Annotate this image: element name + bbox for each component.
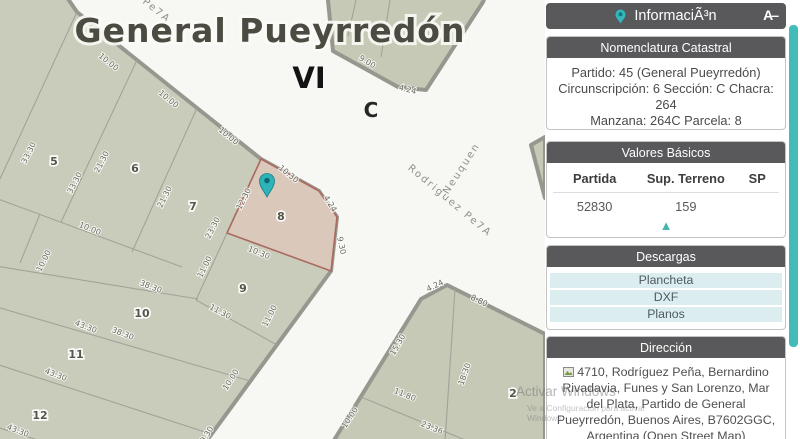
address-photo-icon	[563, 367, 574, 377]
panel-valores: Valores Básicos Partida Sup. Terreno SP …	[546, 141, 786, 238]
nomenclatura-circunscripcion: Circunscripción: 6 Sección: C Chacra: 26…	[551, 81, 781, 113]
cell-partida: 52830	[553, 199, 636, 214]
parcel-number: 5	[50, 155, 58, 168]
direccion-body: 4710, Rodríguez Peña, Bernardino Rivadav…	[547, 358, 785, 439]
parcel-number: 8	[277, 210, 285, 223]
block-bottom-right[interactable]	[328, 285, 545, 439]
info-header: InformaciÃ³n A–	[546, 3, 786, 29]
info-sidebar: InformaciÃ³n A– Nomenclatura Catastral P…	[546, 0, 786, 439]
download-plancheta[interactable]: Plancheta	[550, 273, 782, 288]
panel-direccion-title: Dirección	[547, 337, 785, 358]
panel-nomenclatura-title: Nomenclatura Catastral	[547, 37, 785, 58]
parcel-number: 6	[131, 162, 139, 175]
block-right-fragment[interactable]	[531, 137, 545, 198]
panel-descargas-title: Descargas	[547, 246, 785, 267]
parcel-number: 12	[32, 409, 47, 422]
panel-valores-title: Valores Básicos	[547, 142, 785, 163]
cell-sp	[735, 199, 779, 214]
street-label-neuquen: Neuquen	[441, 141, 482, 197]
cell-sup-terreno: 159	[636, 199, 735, 214]
map-canvas: 10.00 10.00 10.00 10.30 4.24 9.30 12.30 …	[0, 0, 545, 439]
section-label: C	[364, 98, 379, 122]
panel-direccion: Dirección 4710, Rodríguez Peña, Bernardi…	[546, 336, 786, 439]
col-sup-terreno: Sup. Terreno	[636, 171, 735, 186]
cadastral-map[interactable]: 10.00 10.00 10.00 10.30 4.24 9.30 12.30 …	[0, 0, 545, 439]
col-partida: Partida	[553, 171, 636, 186]
nomenclatura-manzana: Manzana: 264C Parcela: 8	[551, 113, 781, 129]
panel-descargas: Descargas Plancheta DXF Planos	[546, 245, 786, 330]
parcel-number: 10	[134, 307, 150, 320]
map-title: General Pueyrredón	[75, 11, 466, 50]
col-sp: SP	[735, 171, 779, 186]
parcel-number: 7	[189, 200, 197, 213]
parcel-number: 11	[68, 348, 83, 361]
parcel-number: 2	[509, 387, 517, 400]
nomenclatura-partido: Partido: 45 (General Pueyrredón)	[551, 65, 781, 81]
download-planos[interactable]: Planos	[550, 307, 782, 322]
download-dxf[interactable]: DXF	[550, 290, 782, 305]
valores-data-row: 52830 159	[553, 192, 779, 214]
descargas-body: Plancheta DXF Planos	[547, 267, 785, 328]
panel-nomenclatura: Nomenclatura Catastral Partido: 45 (Gene…	[546, 36, 786, 130]
cadastral-viewer: 10.00 10.00 10.00 10.30 4.24 9.30 12.30 …	[0, 0, 800, 439]
nomenclatura-body: Partido: 45 (General Pueyrredón) Circuns…	[547, 58, 785, 130]
pyramid-icon[interactable]: ▲	[553, 219, 779, 233]
font-collapse-icon[interactable]: A–	[763, 7, 777, 23]
dimension-label: 9.30	[335, 236, 348, 255]
map-pin-icon	[615, 9, 626, 24]
direccion-text: 4710, Rodríguez Peña, Bernardino Rivadav…	[557, 365, 775, 439]
valores-table: Partida Sup. Terreno SP 52830 159 ▲	[547, 163, 785, 233]
info-header-title: InformaciÃ³n	[634, 8, 716, 24]
zone-label: VI	[292, 61, 325, 95]
street-label-rodriguez: Rodriguez Pe7A	[405, 163, 493, 240]
sidebar-scrollbar[interactable]	[789, 25, 798, 347]
parcel-number: 9	[239, 282, 247, 295]
valores-header-row: Partida Sup. Terreno SP	[553, 171, 779, 186]
